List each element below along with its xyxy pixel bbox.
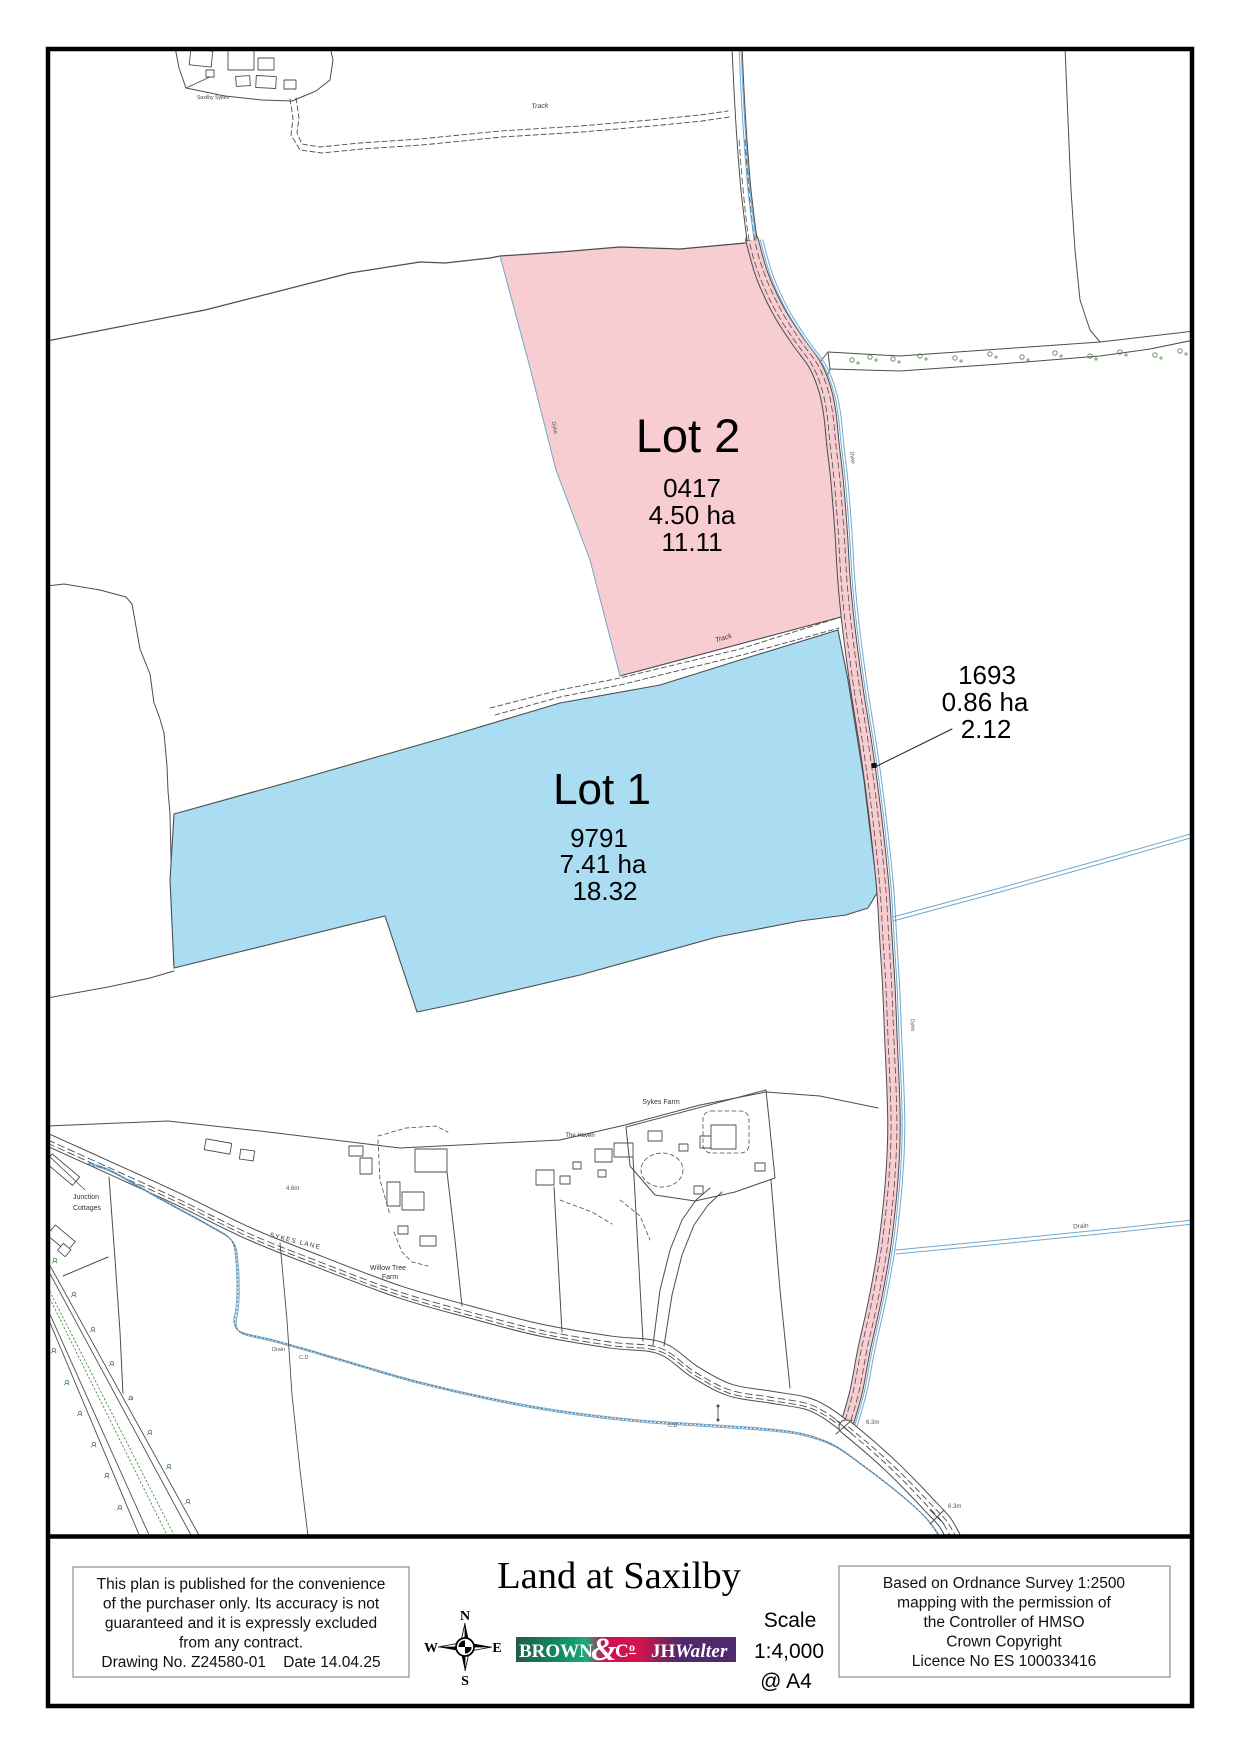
svg-text:Crown Copyright: Crown Copyright xyxy=(946,1634,1062,1651)
svg-text:The Haven: The Haven xyxy=(565,1133,594,1139)
svg-text:4.6m: 4.6m xyxy=(286,1186,299,1192)
svg-text:Drawing No. Z24580-01 Date: Drawing No. Z24580-01 Date 14.04.25 xyxy=(101,1654,380,1671)
svg-text:Sykes Farm: Sykes Farm xyxy=(642,1099,680,1106)
svg-text:Lot 2: Lot 2 xyxy=(636,409,741,462)
svg-text:of the purchaser only. Its acc: of the purchaser only. Its accuracy is n… xyxy=(103,1596,380,1613)
svg-text:Land at Saxilby: Land at Saxilby xyxy=(497,1555,742,1597)
svg-text:4.50 ha: 4.50 ha xyxy=(649,500,736,530)
svg-text:&: & xyxy=(591,1632,617,1668)
svg-text:from any contract.: from any contract. xyxy=(179,1635,303,1652)
svg-text:0.86 ha: 0.86 ha xyxy=(942,687,1029,717)
svg-text:Drain: Drain xyxy=(1073,1222,1089,1230)
svg-text:1:4,000: 1:4,000 xyxy=(754,1640,824,1663)
svg-text:11.11: 11.11 xyxy=(661,527,722,557)
svg-text:C.D: C.D xyxy=(299,1355,309,1361)
svg-text:N: N xyxy=(460,1609,470,1624)
svg-text:Walter: Walter xyxy=(675,1641,728,1662)
svg-text:Based on Ordnance Survey 1:250: Based on Ordnance Survey 1:2500 xyxy=(883,1575,1126,1592)
svg-text:JH: JH xyxy=(651,1641,676,1662)
svg-text:S: S xyxy=(461,1674,469,1689)
svg-text:C: C xyxy=(615,1641,629,1662)
svg-text:2.12: 2.12 xyxy=(961,714,1012,744)
svg-text:Willow Tree: Willow Tree xyxy=(370,1265,406,1272)
svg-text:guaranteed and it is expressly: guaranteed and it is expressly excluded xyxy=(105,1615,377,1632)
svg-text:18.32: 18.32 xyxy=(572,876,637,906)
svg-text:o: o xyxy=(629,1640,635,1654)
svg-text:This plan is published for the: This plan is published for the convenien… xyxy=(97,1576,386,1593)
svg-text:Track: Track xyxy=(531,103,549,111)
svg-text:1693: 1693 xyxy=(958,660,1016,690)
svg-text:Drain: Drain xyxy=(272,1347,285,1353)
svg-text:6.3m: 6.3m xyxy=(948,1504,961,1510)
svg-text:the Controller of HMSO: the Controller of HMSO xyxy=(923,1614,1084,1631)
svg-text:Licence No ES 100033416: Licence No ES 100033416 xyxy=(912,1653,1096,1670)
svg-text:0417: 0417 xyxy=(663,473,721,503)
svg-text:BROWN: BROWN xyxy=(519,1641,593,1662)
svg-text:7.41 ha: 7.41 ha xyxy=(560,849,647,879)
svg-text:W: W xyxy=(424,1641,438,1656)
svg-text:Cottages: Cottages xyxy=(73,1205,102,1212)
svg-text:Saxilby Sykes: Saxilby Sykes xyxy=(197,95,230,101)
svg-text:Dyke: Dyke xyxy=(909,1018,916,1031)
svg-text:Junction: Junction xyxy=(73,1194,99,1201)
svg-text:C.D: C.D xyxy=(668,1423,678,1429)
svg-text:@ A4: @ A4 xyxy=(760,1670,812,1693)
svg-text:E: E xyxy=(492,1641,501,1656)
svg-text:mapping with the permission of: mapping with the permission of xyxy=(897,1595,1111,1612)
svg-text:Scale: Scale xyxy=(764,1609,817,1632)
svg-text:Farm: Farm xyxy=(382,1274,399,1281)
svg-text:6.3m: 6.3m xyxy=(866,1420,879,1426)
svg-text:Lot 1: Lot 1 xyxy=(553,765,651,814)
